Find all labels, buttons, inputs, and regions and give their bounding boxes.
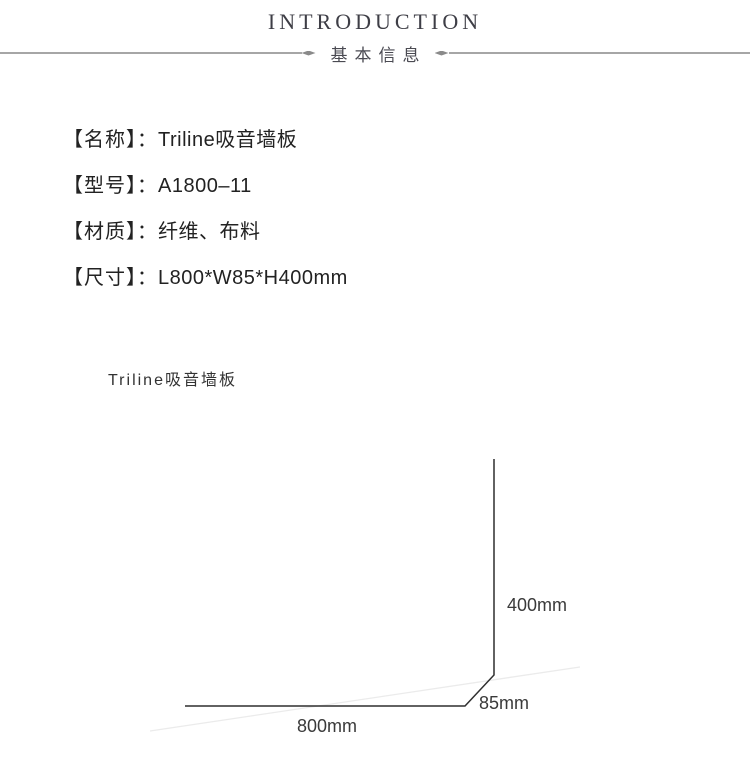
panel-side-face	[429, 623, 432, 658]
width-dimension-label: 800mm	[297, 716, 357, 736]
panel-side-face	[455, 489, 459, 519]
height-dimension-label: 400mm	[507, 595, 567, 615]
panel-side-face	[433, 523, 437, 550]
panel-wall	[197, 457, 477, 692]
depth-dimension-label: 85mm	[479, 693, 529, 713]
panel-row-3	[320, 548, 473, 586]
panel-side-face	[473, 555, 477, 584]
panel-side-face	[413, 592, 416, 626]
product-dimension-drawing: 400mm 85mm 800mm	[0, 0, 750, 764]
